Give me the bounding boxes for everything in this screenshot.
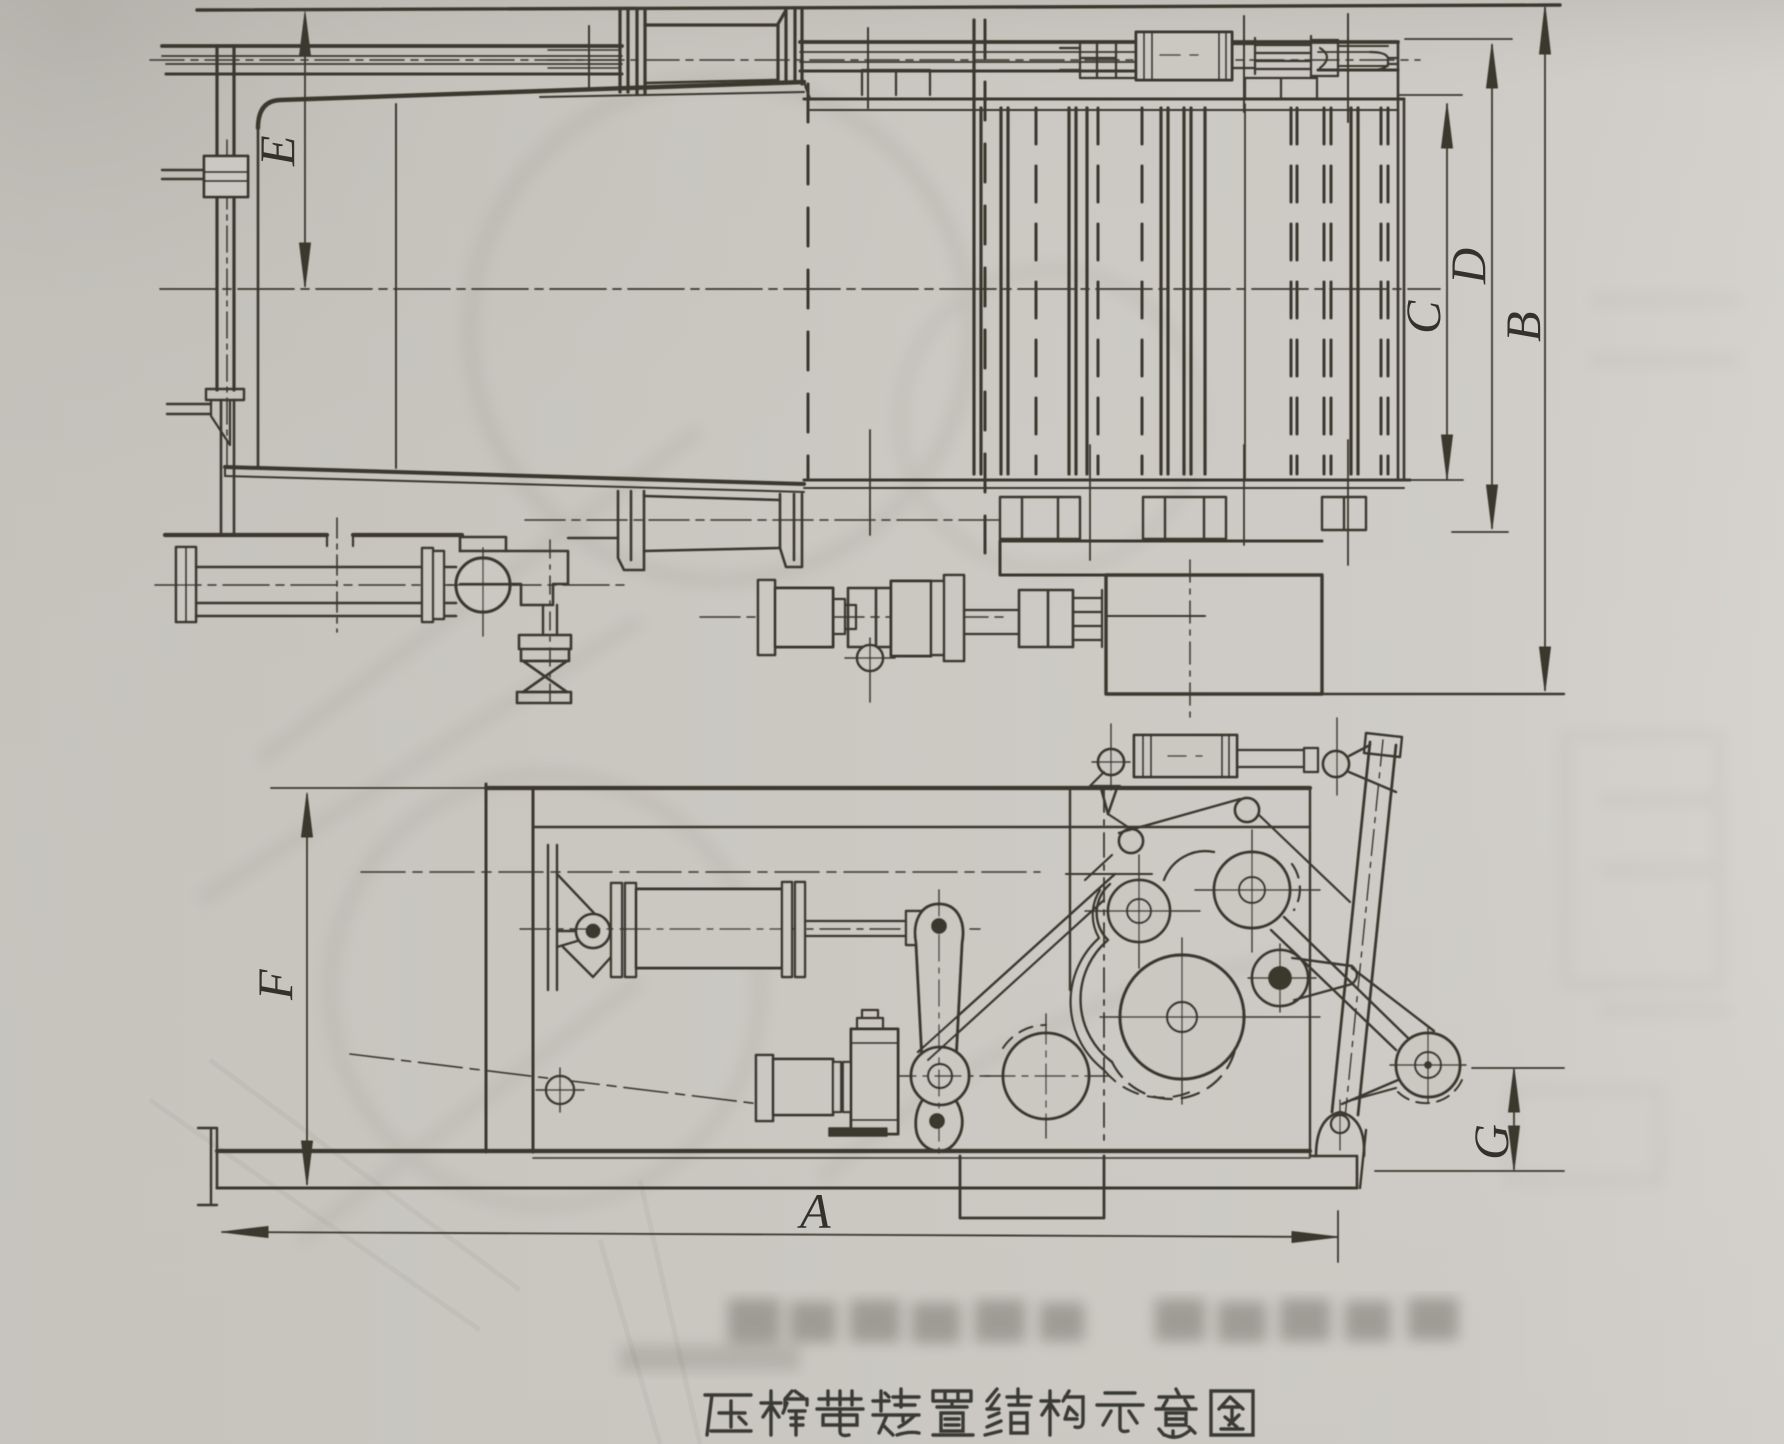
svg-text:F: F <box>247 969 303 1001</box>
svg-text:G: G <box>1463 1124 1519 1160</box>
svg-text:B: B <box>1495 311 1551 342</box>
svg-text:E: E <box>249 135 305 167</box>
svg-text:A: A <box>797 1183 831 1239</box>
svg-text:D: D <box>1440 248 1496 285</box>
svg-text:C: C <box>1395 300 1451 334</box>
